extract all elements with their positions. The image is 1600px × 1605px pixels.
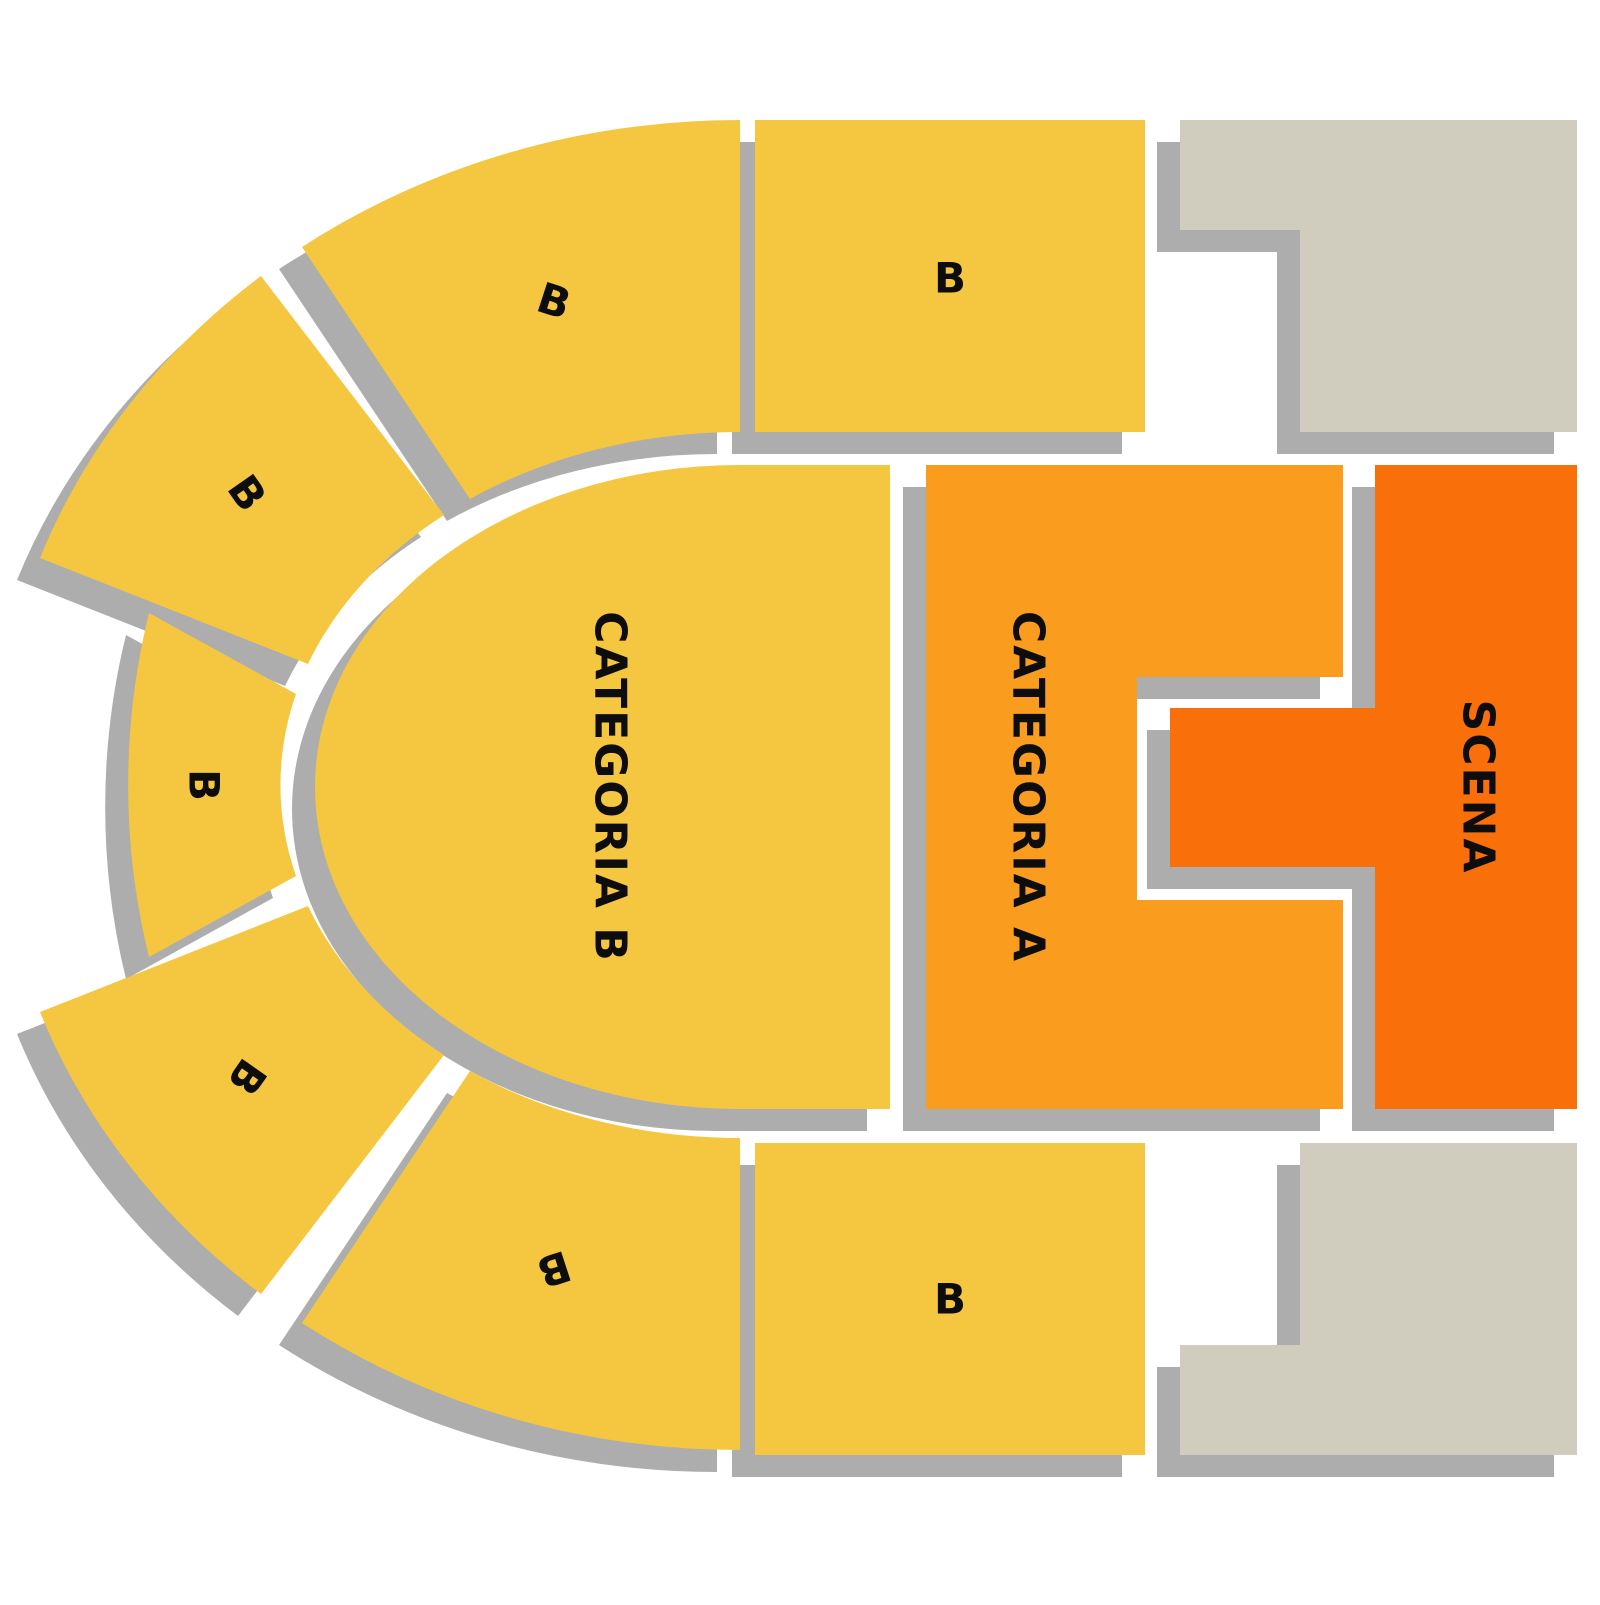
structure-block-top	[1180, 120, 1577, 432]
categoria-b-label: CATEGORIA B	[585, 611, 636, 963]
structure-block-bottom	[1180, 1143, 1577, 1455]
arc-left-label: B	[180, 769, 229, 801]
block-top-label: B	[934, 254, 966, 303]
section-layer	[40, 120, 1577, 1455]
stage-thrust	[1170, 708, 1380, 867]
scena-label: SCENA	[1453, 700, 1504, 875]
block-bottom-label: B	[934, 1275, 966, 1324]
categoria-a-label: CATEGORIA A	[1003, 611, 1054, 963]
seat-map-canvas: B B B B B B B CATEGORIA B CATEGORIA A SC…	[0, 0, 1600, 1600]
seat-map: B B B B B B B CATEGORIA B CATEGORIA A SC…	[0, 0, 1600, 1600]
